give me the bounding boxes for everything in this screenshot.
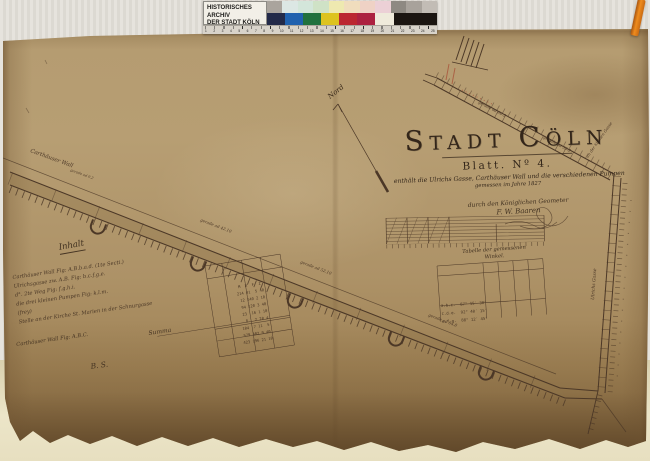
- color-patch: [339, 13, 357, 25]
- inhalt-grid-numbers: M R F Z214 41 5 40 12 140 2 10 94 120 3 …: [206, 254, 298, 349]
- ruler-number: 21: [391, 29, 395, 33]
- ruler-number: 24: [421, 29, 425, 33]
- ruler-number: 1: [205, 29, 207, 33]
- color-patch: [375, 1, 390, 13]
- ruler-numbers: 1234567891011121314151617181920212223242…: [205, 29, 435, 33]
- color-patch: [422, 1, 437, 13]
- color-patch: [303, 13, 321, 25]
- north-label: Nord: [326, 83, 346, 101]
- archive-label: HISTORISCHES ARCHIV DER STADT KÖLN: [203, 1, 267, 25]
- patch-row-dark: [267, 13, 437, 25]
- ruler-number: 5: [238, 29, 240, 33]
- ruler-number: 10: [280, 29, 284, 33]
- ruler-number: 25: [431, 29, 435, 33]
- street-name-label: Ulrichs Gasse: [590, 268, 598, 300]
- color-patch: [313, 1, 328, 13]
- map-linework: Carthäuser Wall gerade ad 9.2 gerade ad …: [0, 0, 650, 461]
- color-patch: [344, 1, 359, 13]
- color-patch: [298, 1, 313, 13]
- measure-label: gerade ad 52.10: [300, 259, 333, 276]
- pen-stains: [26, 60, 47, 113]
- title-block: Stadt Cöln Blatt. Nº 4. enthält die Ulri…: [392, 118, 622, 192]
- ruler-number: 14: [320, 29, 324, 33]
- ruler-number: 20: [381, 29, 385, 33]
- right-street: [598, 174, 631, 394]
- ruler-number: 17: [350, 29, 354, 33]
- archive-label-line1: HISTORISCHES ARCHIV: [207, 5, 264, 20]
- title-word: Cöln: [518, 118, 609, 153]
- measure-label: gerade ad 80.5: [478, 99, 508, 118]
- wall-label: Carthäuser Wall: [29, 148, 74, 169]
- ruler-number: 19: [371, 29, 375, 33]
- ruler-number: 11: [290, 29, 293, 33]
- color-patch: [394, 13, 437, 25]
- ruler-number: 4: [230, 29, 232, 33]
- color-patches: [267, 1, 437, 25]
- ruler-number: 7: [255, 29, 257, 33]
- ruler-number: 18: [360, 29, 364, 33]
- ruler-number: 3: [222, 29, 224, 33]
- color-calibration-bar: HISTORISCHES ARCHIV DER STADT KÖLN 12345…: [203, 1, 437, 34]
- ruler-number: 23: [411, 29, 415, 33]
- pump-niche: [89, 219, 106, 235]
- color-patch: [406, 1, 421, 13]
- scanned-map-page: Carthäuser Wall gerade ad 9.2 gerade ad …: [0, 0, 650, 461]
- color-patch: [321, 13, 339, 25]
- ruler-number: 22: [401, 29, 405, 33]
- ruler-number: 6: [247, 29, 249, 33]
- ruler-number: 15: [330, 29, 334, 33]
- color-patch: [282, 1, 297, 13]
- color-patch: [391, 1, 406, 13]
- ruler-number: 12: [300, 29, 304, 33]
- bridge-structure: [446, 36, 492, 104]
- color-patch: [375, 13, 393, 25]
- color-patch: [267, 13, 285, 25]
- color-patch: [285, 13, 303, 25]
- red-survey-marks: [446, 64, 492, 104]
- ruler-number: 13: [310, 29, 314, 33]
- color-patch: [329, 1, 344, 13]
- scale-bar: [386, 215, 544, 246]
- color-patch: [267, 1, 282, 13]
- map-sheet: Carthäuser Wall gerade ad 9.2 gerade ad …: [0, 0, 650, 461]
- measure-label: gerade ad 9.2: [70, 168, 95, 180]
- patch-row-light: [267, 1, 437, 13]
- page-title: Stadt Cöln: [392, 118, 621, 158]
- angle-table-rows: a.b.c. 87° 15′ 30″c.d.e. 92° 40′ 15″e.f.…: [439, 271, 546, 326]
- color-patch: [360, 1, 375, 13]
- title-word: Stadt: [404, 122, 507, 158]
- ruler-number: 9: [272, 29, 274, 33]
- ruler-number: 16: [340, 29, 344, 33]
- ruler-number: 2: [213, 29, 215, 33]
- north-arrow: [333, 104, 388, 192]
- ruler-number: 8: [263, 29, 265, 33]
- measure-label: gerade ad 42.10: [200, 217, 233, 234]
- calibration-ruler: 1234567891011121314151617181920212223242…: [203, 25, 437, 34]
- color-patch: [357, 13, 375, 25]
